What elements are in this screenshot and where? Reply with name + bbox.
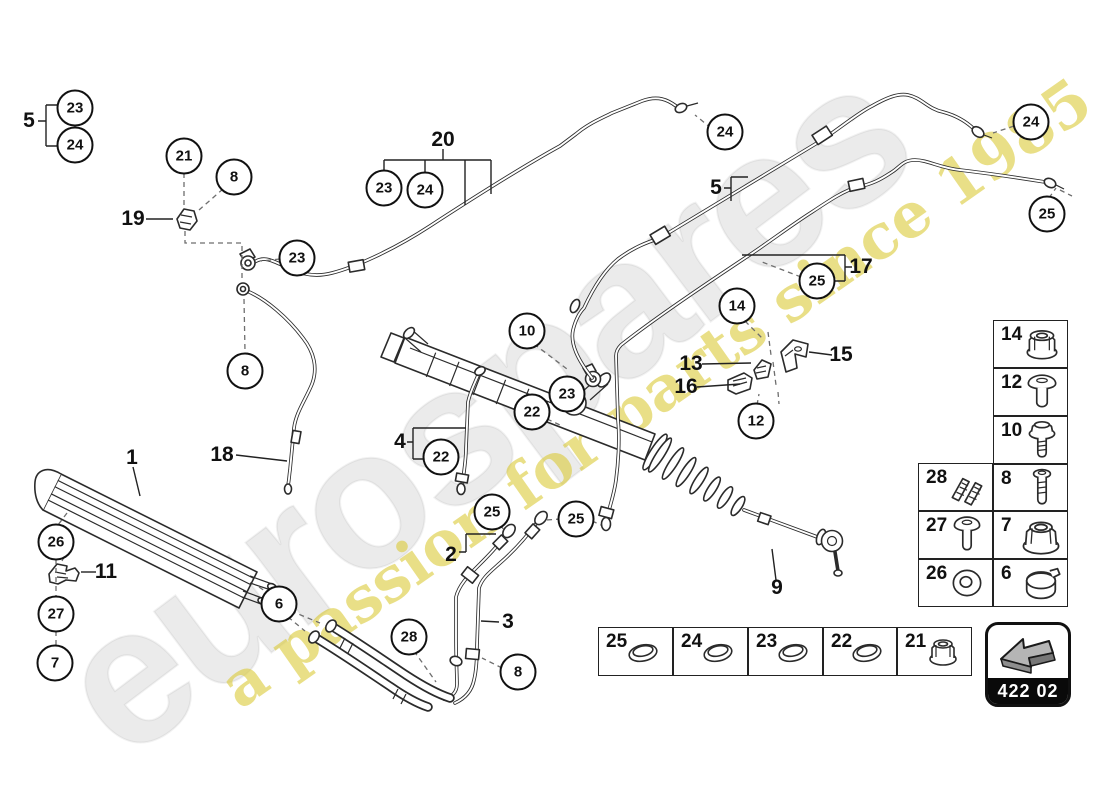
- part-label-9[interactable]: 9: [771, 576, 783, 600]
- flange-nut-small-icon: [921, 632, 965, 672]
- seals-cell-25[interactable]: 25: [598, 627, 673, 676]
- flange-nut-icon: [1020, 323, 1064, 365]
- clip-13: [754, 360, 771, 379]
- seal-ring-icon: [844, 632, 890, 672]
- part-label-11[interactable]: 11: [95, 560, 117, 584]
- callout-12[interactable]: 12: [738, 403, 775, 440]
- diagram-code-box[interactable]: 422 02: [985, 622, 1071, 707]
- part-label-20[interactable]: 20: [431, 128, 454, 152]
- callout-23[interactable]: 23: [366, 170, 403, 207]
- clamp-ring-icon: [1018, 561, 1064, 605]
- pan-screw-icon: [1020, 371, 1064, 413]
- callout-25[interactable]: 25: [799, 263, 836, 300]
- parts-cell-8[interactable]: 8: [993, 464, 1068, 511]
- callout-23[interactable]: 23: [549, 376, 586, 413]
- part-label-3[interactable]: 3: [502, 610, 514, 634]
- seals-cell-23[interactable]: 23: [748, 627, 823, 676]
- part-number: 6: [1001, 563, 1012, 585]
- seals-cell-22[interactable]: 22: [823, 627, 897, 676]
- callout-25[interactable]: 25: [1029, 196, 1066, 233]
- tie-rod: [744, 510, 843, 576]
- bolt-icon: [1020, 467, 1064, 509]
- callout-24[interactable]: 24: [407, 172, 444, 209]
- callout-24[interactable]: 24: [707, 114, 744, 151]
- callout-25[interactable]: 25: [474, 494, 511, 531]
- callout-21[interactable]: 21: [166, 138, 203, 175]
- seal-ring-icon: [620, 632, 666, 672]
- callout-24[interactable]: 24: [1013, 104, 1050, 141]
- part-label-5[interactable]: 5: [710, 176, 722, 200]
- part-number: 14: [1001, 324, 1022, 346]
- part-label-5[interactable]: 5: [23, 109, 35, 133]
- parts-cell-28[interactable]: 28: [918, 463, 993, 511]
- bracket-16: [728, 373, 752, 394]
- part-label-19[interactable]: 19: [121, 207, 144, 231]
- part-number: 26: [926, 563, 947, 585]
- part-label-15[interactable]: 15: [829, 343, 852, 367]
- part-number: 12: [1001, 372, 1022, 394]
- part-label-2[interactable]: 2: [445, 543, 457, 567]
- callout-22[interactable]: 22: [423, 439, 460, 476]
- parts-cell-27[interactable]: 27: [918, 511, 993, 559]
- cooler-hoses-28: [307, 618, 450, 707]
- seal-ring-icon: [770, 632, 816, 672]
- callout-22[interactable]: 22: [514, 394, 551, 431]
- part-label-16[interactable]: 16: [674, 375, 697, 399]
- part-label-1[interactable]: 1: [126, 446, 138, 470]
- callout-8[interactable]: 8: [216, 159, 253, 196]
- callout-6[interactable]: 6: [261, 586, 298, 623]
- stud-nut-icon: [1020, 419, 1064, 461]
- part-label-18[interactable]: 18: [210, 443, 233, 467]
- retaining-clip-11: [49, 564, 79, 584]
- part-label-4[interactable]: 4: [394, 430, 406, 454]
- callout-26[interactable]: 26: [38, 524, 75, 561]
- parts-diagram-page: eurospares a passion for parts since 198…: [0, 0, 1100, 800]
- callout-8[interactable]: 8: [227, 353, 264, 390]
- parts-cell-6[interactable]: 6: [993, 559, 1068, 607]
- flange-nut-large-icon: [1018, 513, 1064, 557]
- callout-24[interactable]: 24: [57, 127, 94, 164]
- callout-8[interactable]: 8: [500, 654, 537, 691]
- parts-cell-7[interactable]: 7: [993, 511, 1068, 559]
- callout-10[interactable]: 10: [509, 313, 546, 350]
- parts-cell-14[interactable]: 14: [993, 320, 1068, 368]
- callout-14[interactable]: 14: [719, 288, 756, 325]
- spring-clips-icon: [945, 466, 989, 508]
- seals-cell-24[interactable]: 24: [673, 627, 748, 676]
- callout-25[interactable]: 25: [558, 501, 595, 538]
- callout-27[interactable]: 27: [38, 596, 75, 633]
- washer-icon: [945, 562, 989, 604]
- callout-23[interactable]: 23: [57, 90, 94, 127]
- seals-cell-21[interactable]: 21: [897, 627, 972, 676]
- section-arrow-icon: [988, 625, 1068, 681]
- part-number: 8: [1001, 468, 1012, 490]
- callout-7[interactable]: 7: [37, 645, 74, 682]
- parts-cell-12[interactable]: 12: [993, 368, 1068, 416]
- callout-23[interactable]: 23: [279, 240, 316, 277]
- part-number: 28: [926, 467, 947, 489]
- part-number: 27: [926, 515, 947, 537]
- parts-cell-26[interactable]: 26: [918, 559, 993, 607]
- retaining-clip-19: [177, 209, 197, 230]
- seal-ring-icon: [695, 632, 741, 672]
- callout-28[interactable]: 28: [391, 619, 428, 656]
- diagram-code: 422 02: [988, 678, 1068, 704]
- rivet-screw-icon: [945, 514, 989, 556]
- bracket-15: [781, 340, 808, 372]
- part-label-13[interactable]: 13: [679, 352, 702, 376]
- parts-cell-10[interactable]: 10: [993, 416, 1068, 464]
- part-label-17[interactable]: 17: [849, 255, 872, 279]
- part-number: 10: [1001, 420, 1022, 442]
- part-number: 7: [1001, 515, 1012, 537]
